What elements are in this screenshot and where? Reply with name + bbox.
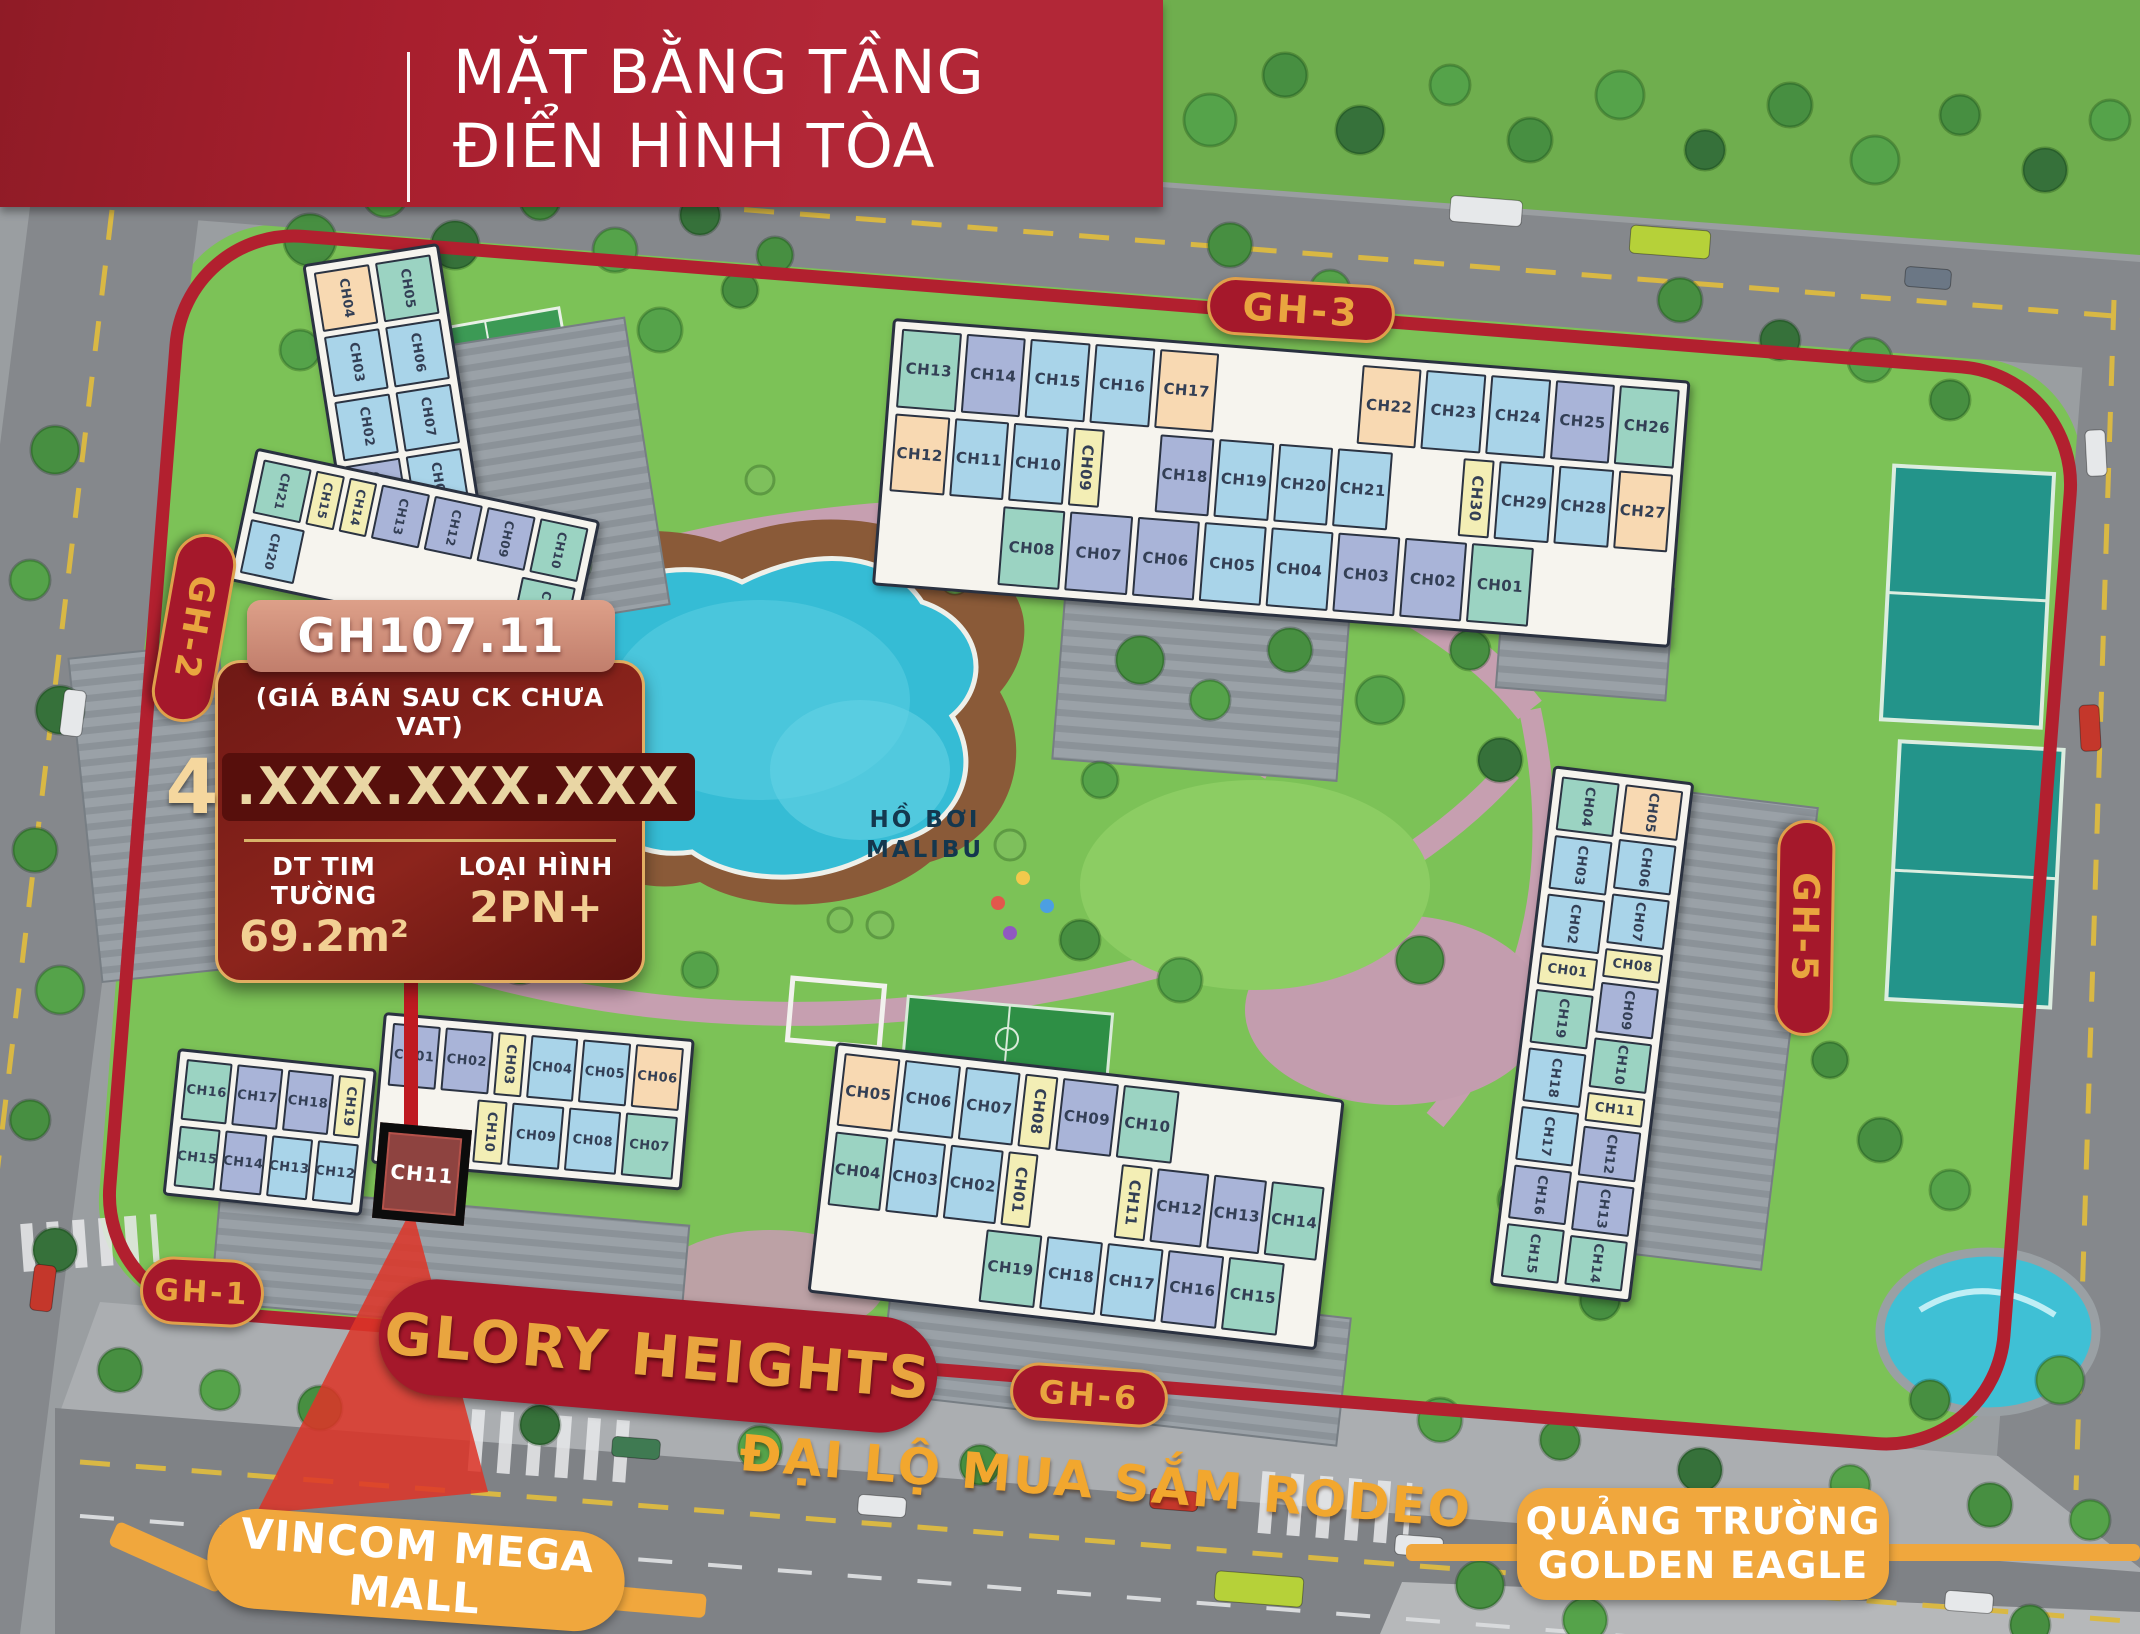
card-divider (244, 839, 616, 842)
unit-CH18: CH18 (282, 1070, 334, 1135)
unit-CH19: CH19 (1214, 439, 1275, 522)
unit-CH05: CH05 (578, 1040, 631, 1107)
unit-CH05: CH05 (1620, 784, 1684, 841)
unit-label: CH25 (1559, 411, 1607, 433)
unit-CH03: CH03 (885, 1138, 946, 1217)
unit-label: CH05 (397, 267, 418, 309)
pool-label-line2: MALIBU (845, 836, 1005, 866)
unit-label: CH12 (443, 508, 465, 548)
unit-CH14: CH14 (338, 478, 378, 538)
unit-label: CH22 (1365, 396, 1413, 418)
unit-CH06: CH06 (1613, 839, 1677, 896)
page-title-line1: MẶT BẰNG TẦNG (453, 36, 985, 110)
unit-CH20: CH20 (1273, 443, 1334, 526)
highlighted-unit-ch11: CH11 (372, 1122, 472, 1226)
unit-CH10: CH10 (472, 1100, 508, 1165)
unit-CH14: CH14 (960, 334, 1026, 417)
unit-label: CH07 (1628, 901, 1648, 943)
unit-CH17: CH17 (1154, 349, 1220, 432)
unit-CH12: CH12 (424, 496, 483, 560)
unit-label: CH15 (1229, 1285, 1277, 1308)
unit-label: CH13 (1213, 1203, 1261, 1226)
unit-label: CH10 (1610, 1044, 1630, 1086)
unit-label: CH23 (1430, 401, 1478, 423)
unit-CH29: CH29 (1494, 461, 1555, 544)
unit-label: CH02 (1409, 569, 1457, 591)
unit-label: CH18 (287, 1093, 329, 1112)
page-title: MẶT BẰNG TẦNG ĐIỂN HÌNH TÒA (453, 36, 985, 184)
unit-label: CH05 (584, 1064, 626, 1082)
page-title-line2: ĐIỂN HÌNH TÒA (453, 110, 985, 184)
unit-label: CH14 (1586, 1242, 1606, 1284)
unit-label: CH03 (1342, 564, 1390, 586)
unit-label: CH18 (1047, 1264, 1095, 1287)
unit-label: CH04 (1275, 559, 1323, 581)
unit-CH12: CH12 (1578, 1126, 1642, 1183)
unit-CH14: CH14 (220, 1130, 267, 1195)
unit-CH01: CH01 (1000, 1152, 1039, 1228)
unit-info-card: GH107.11 (GIÁ BÁN SAU CK CHƯA VAT) 4 .XX… (215, 600, 645, 983)
unit-label: CH28 (1560, 496, 1608, 518)
unit-label: CH20 (261, 532, 283, 572)
corridor-gap (883, 498, 999, 585)
unit-label: CH01 (1476, 574, 1524, 596)
unit-CH24: CH24 (1485, 375, 1551, 458)
unit-CH19: CH19 (979, 1229, 1043, 1308)
unit-CH17: CH17 (1515, 1106, 1579, 1167)
corridor-gap (819, 1211, 982, 1302)
unit-CH15: CH15 (305, 471, 345, 531)
unit-CH10: CH10 (529, 518, 588, 582)
unit-CH15: CH15 (1501, 1223, 1565, 1284)
unit-label: CH10 (481, 1111, 499, 1153)
unit-label: CH17 (1108, 1271, 1156, 1294)
unit-CH03: CH03 (1548, 835, 1612, 896)
unit-label: CH13 (268, 1158, 310, 1177)
unit-label: CH21 (1339, 479, 1387, 501)
lawn (1080, 780, 1430, 990)
corridor-gap (1392, 453, 1459, 536)
unit-CH06: CH06 (631, 1044, 684, 1111)
unit-CH12: CH12 (1149, 1169, 1210, 1248)
unit-label: CH11 (955, 448, 1003, 470)
unit-CH13: CH13 (1571, 1180, 1635, 1237)
unit-CH11: CH11 (1113, 1164, 1152, 1240)
unit-CH07: CH07 (1606, 894, 1670, 951)
unit-CH02: CH02 (334, 393, 399, 461)
unit-label: CH01 (1008, 1166, 1031, 1214)
unit-CH09: CH09 (1055, 1078, 1119, 1157)
unit-CH13: CH13 (266, 1135, 313, 1200)
unit-label: CH30 (1465, 474, 1487, 522)
unit-CH04: CH04 (828, 1132, 889, 1211)
unit-label: CH19 (986, 1257, 1034, 1280)
unit-CH22: CH22 (1356, 365, 1422, 448)
unit-label: CH26 (1623, 416, 1671, 438)
unit-label: CH29 (1500, 491, 1548, 513)
corridor-gap (1218, 354, 1357, 443)
unit-label: CH12 (896, 444, 944, 466)
unit-CH11: CH11 (949, 418, 1010, 501)
corridor-gap (1533, 549, 1667, 637)
unit-label: CH15 (314, 481, 336, 521)
unit-row: CH16CH17CH18CH19 (181, 1059, 366, 1138)
unit-label: CH05 (1642, 792, 1662, 834)
unit-label: CH18 (1161, 465, 1209, 487)
header-band: MẶT BẰNG TẦNG ĐIỂN HÌNH TÒA (0, 0, 1163, 207)
unit-label: CH17 (236, 1087, 278, 1106)
unit-label: CH08 (572, 1132, 614, 1150)
unit-label: CH13 (1593, 1188, 1613, 1230)
unit-label: CH09 (1617, 990, 1637, 1032)
zone-label-gh1: GH-1 (138, 1255, 265, 1329)
unit-CH11: CH11 (1584, 1091, 1645, 1127)
unit-CH04: CH04 (526, 1035, 579, 1102)
unit-label: CH04 (531, 1059, 573, 1077)
pool-label: HỒ BƠI MALIBU (845, 806, 1005, 866)
pool-label-line1: HỒ BƠI (845, 806, 1005, 836)
unit-label: CH08 (1008, 537, 1056, 559)
unit-label: CH04 (834, 1160, 882, 1183)
unit-CH09: CH09 (508, 1103, 565, 1170)
unit-label: CH12 (1600, 1133, 1620, 1175)
price-note: (GIÁ BÁN SAU CK CHƯA VAT) (218, 683, 642, 741)
unit-label: CH06 (407, 332, 428, 374)
unit-label: CH07 (629, 1137, 671, 1155)
price-lead-digit: 4 (166, 749, 219, 825)
unit-CH27: CH27 (1613, 470, 1674, 553)
type-stat: LOẠI HÌNH 2PN+ (430, 852, 642, 962)
unit-label: CH15 (1034, 370, 1082, 392)
unit-label: CH12 (1155, 1196, 1203, 1219)
unit-label: CH16 (186, 1082, 228, 1101)
unit-CH04: CH04 (314, 264, 379, 332)
area-stat: DT TIM TƯỜNG 69.2m² (218, 852, 430, 962)
unit-CH21: CH21 (252, 459, 311, 523)
unit-CH17: CH17 (231, 1064, 283, 1129)
unit-label: CH14 (347, 488, 369, 528)
unit-CH09: CH09 (1067, 427, 1105, 508)
unit-label: CH11 (1594, 1100, 1636, 1120)
unit-CH07: CH07 (1065, 512, 1133, 595)
unit-label: CH01 (1546, 962, 1588, 982)
unit-label: CH05 (1209, 553, 1257, 575)
unit-label: CH14 (1270, 1209, 1318, 1232)
unit-label: CH18 (1544, 1057, 1564, 1099)
unit-label: CH15 (1523, 1232, 1543, 1274)
unit-CH09: CH09 (1595, 982, 1659, 1039)
unit-CH01: CH01 (1537, 952, 1598, 990)
unit-CH07: CH07 (621, 1112, 678, 1179)
type-label: LOẠI HÌNH (430, 852, 642, 881)
unit-CH03: CH03 (1332, 533, 1400, 616)
square-label-line2: GOLDEN EAGLE (1538, 1544, 1868, 1588)
unit-CH04: CH04 (1265, 528, 1333, 611)
unit-label: CH09 (515, 1127, 557, 1145)
unit-CH16: CH16 (181, 1059, 233, 1124)
unit-CH04: CH04 (1556, 776, 1620, 837)
unit-label: CH07 (1075, 543, 1123, 565)
unit-CH20: CH20 (240, 519, 305, 584)
unit-label: CH10 (1123, 1113, 1171, 1136)
unit-CH12: CH12 (312, 1140, 359, 1205)
zone-label-gh5: GH-5 (1774, 820, 1836, 1037)
unit-CH06: CH06 (385, 319, 450, 387)
unit-label: CH12 (314, 1163, 356, 1182)
corridor-gap (1104, 430, 1156, 512)
unit-CH03: CH03 (324, 328, 389, 396)
unit-label: CH09 (1076, 444, 1098, 492)
unit-CH21: CH21 (1332, 448, 1393, 531)
unit-label: CH16 (1530, 1174, 1550, 1216)
unit-label: CH27 (1619, 501, 1667, 523)
unit-label: CH03 (891, 1166, 939, 1189)
unit-CH12: CH12 (889, 413, 950, 496)
building-gh1-left-plate: CH16CH17CH18CH19 CH15CH14CH13CH12 (163, 1048, 377, 1216)
unit-label: CH02 (356, 406, 377, 448)
unit-CH10: CH10 (1589, 1037, 1653, 1094)
unit-label: CH08 (1612, 956, 1654, 976)
unit-CH02: CH02 (440, 1027, 493, 1094)
unit-CH08: CH08 (998, 507, 1066, 590)
unit-label: CH07 (965, 1095, 1013, 1118)
unit-info-card-body: (GIÁ BÁN SAU CK CHƯA VAT) 4 .XXX.XXX.XXX… (215, 660, 645, 983)
unit-CH19: CH19 (1530, 989, 1594, 1050)
unit-label: CH10 (1014, 453, 1062, 475)
unit-label: CH06 (1635, 846, 1655, 888)
unit-label: CH11 (1121, 1179, 1144, 1227)
unit-CH05: CH05 (837, 1053, 901, 1132)
unit-label: CH08 (1027, 1088, 1050, 1136)
unit-CH13: CH13 (371, 485, 430, 549)
unit-label: CH09 (1063, 1106, 1111, 1129)
unit-CH08: CH08 (564, 1108, 621, 1175)
unit-label: CH19 (1220, 469, 1268, 491)
unit-label: CH04 (335, 277, 356, 319)
corridor-gap (1036, 1156, 1117, 1237)
unit-CH06: CH06 (897, 1060, 961, 1139)
unit-CH10: CH10 (1116, 1085, 1180, 1164)
unit-CH06: CH06 (1132, 517, 1200, 600)
zone-label-gh6: GH-6 (1008, 1361, 1170, 1430)
unit-label: CH17 (1537, 1115, 1557, 1157)
area-value: 69.2m² (218, 912, 430, 962)
unit-CH16: CH16 (1160, 1250, 1224, 1329)
unit-CH02: CH02 (1541, 894, 1605, 955)
unit-CH05: CH05 (375, 254, 440, 322)
unit-CH15: CH15 (174, 1126, 221, 1191)
unit-CH15: CH15 (1025, 339, 1091, 422)
unit-CH23: CH23 (1421, 370, 1487, 453)
square-label: QUẢNG TRƯỜNG GOLDEN EAGLE (1517, 1488, 1889, 1600)
unit-label: CH09 (495, 519, 517, 559)
unit-label: CH06 (905, 1088, 953, 1111)
unit-label: CH03 (346, 341, 367, 383)
unit-CH10: CH10 (1008, 423, 1069, 506)
unit-label: CH19 (1552, 998, 1572, 1040)
unit-CH08: CH08 (1018, 1074, 1059, 1151)
unit-CH16: CH16 (1089, 344, 1155, 427)
unit-label: CH07 (417, 396, 438, 438)
unit-label: CH02 (446, 1052, 488, 1070)
unit-label: CH06 (637, 1068, 679, 1086)
unit-label: CH13 (905, 360, 953, 382)
unit-CH05: CH05 (1198, 522, 1266, 605)
unit-CH25: CH25 (1550, 380, 1616, 463)
unit-label: CH03 (1571, 844, 1591, 886)
unit-CH02: CH02 (1399, 538, 1467, 621)
zone-label-gh3: GH-3 (1205, 275, 1396, 344)
site-plan-poster: HỒ BƠI MALIBU CH04CH03CH02CH01 CH05CH06C… (0, 0, 2140, 1634)
unit-label: CH05 (844, 1081, 892, 1104)
unit-CH26: CH26 (1614, 385, 1680, 468)
unit-CH14: CH14 (1264, 1182, 1325, 1261)
unit-CH30: CH30 (1457, 458, 1495, 539)
unit-CH18: CH18 (1154, 434, 1215, 517)
unit-label: CH06 (1142, 548, 1190, 570)
unit-label: CH21 (271, 472, 293, 512)
unit-CH01: CH01 (1466, 543, 1534, 626)
unit-CH07: CH07 (957, 1067, 1021, 1146)
unit-label: CH14 (222, 1153, 264, 1172)
square-label-line1: QUẢNG TRƯỜNG (1526, 1500, 1881, 1544)
unit-label: CH16 (1098, 375, 1146, 397)
unit-CH13: CH13 (896, 329, 962, 412)
type-value: 2PN+ (430, 883, 642, 933)
title-separator-line (407, 52, 410, 202)
unit-label: CH15 (176, 1149, 218, 1168)
unit-CH13: CH13 (1206, 1175, 1267, 1254)
unit-label: CH14 (969, 365, 1017, 387)
unit-CH09: CH09 (477, 507, 536, 571)
corridor-gap (1282, 1263, 1316, 1339)
unit-CH28: CH28 (1553, 465, 1614, 548)
unit-row: CH15CH14CH13CH12 (174, 1126, 359, 1205)
unit-label: CH10 (548, 530, 570, 570)
unit-label: CH17 (1163, 380, 1211, 402)
unit-label: CH04 (1578, 786, 1598, 828)
unit-CH17: CH17 (1100, 1243, 1164, 1322)
unit-label: CH24 (1494, 406, 1542, 428)
unit-CH08: CH08 (1602, 948, 1663, 984)
unit-CH15: CH15 (1221, 1257, 1285, 1336)
unit-CH19: CH19 (333, 1075, 366, 1138)
unit-code-badge: GH107.11 (247, 600, 615, 672)
unit-label: CH03 (500, 1044, 518, 1086)
unit-CH18: CH18 (1522, 1047, 1586, 1108)
unit-CH03: CH03 (493, 1032, 526, 1097)
price-row: 4 .XXX.XXX.XXX (228, 749, 632, 825)
unit-CH14: CH14 (1564, 1235, 1628, 1292)
corridor-gap (1176, 1092, 1334, 1182)
area-label: DT TIM TƯỜNG (218, 852, 430, 910)
unit-label: CH02 (1563, 903, 1583, 945)
price-masked-digits: .XXX.XXX.XXX (222, 753, 694, 821)
unit-label: CH02 (949, 1173, 997, 1196)
unit-CH07: CH07 (395, 383, 460, 451)
unit-label: CH16 (1168, 1278, 1216, 1301)
unit-CH18: CH18 (1039, 1236, 1103, 1315)
unit-label: CH19 (340, 1086, 359, 1128)
unit-CH02: CH02 (942, 1145, 1003, 1224)
unit-label: CH20 (1280, 474, 1328, 496)
unit-label: CH13 (390, 497, 412, 537)
unit-CH16: CH16 (1508, 1164, 1572, 1225)
